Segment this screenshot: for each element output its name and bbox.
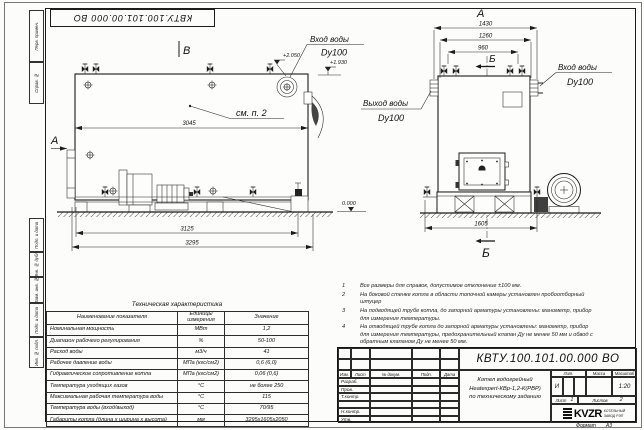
tech-cell: Диапазон рабочего регулирования	[47, 336, 178, 347]
pipe-dn: Dy100	[378, 113, 404, 123]
dim-text: 960	[478, 46, 489, 52]
inlet-flange-right	[530, 80, 543, 96]
tech-cell: Температура уходящих газов	[47, 381, 178, 392]
tech-cell: 1,2	[225, 325, 309, 336]
valve-icon	[207, 64, 213, 74]
tech-cell: Габариты котла (длина х ширина х высота)	[47, 415, 178, 426]
elevation-inlet: +2.050	[274, 53, 301, 76]
tech-cell: Гидравлическое сопротивление котла	[47, 370, 178, 381]
pipe-label: Вход воды	[558, 63, 597, 72]
product-line: Котел водогрейный	[477, 376, 532, 385]
tech-cell: мм	[178, 415, 225, 426]
valve-icon	[93, 64, 99, 74]
kvzr-logo-text: KVZR	[574, 408, 602, 420]
dimension-960: 960	[448, 46, 518, 65]
tech-cell: 41	[225, 347, 309, 358]
note-item: 2 На боковой стенке котла в области топо…	[338, 292, 596, 307]
tech-header-row: Наименование показателя Единицы измерени…	[47, 312, 309, 325]
col-izm: Изм.	[338, 370, 351, 378]
title-block: Изм. Лист № докум. Подп. Дата Разраб. Пр…	[337, 347, 636, 422]
drain-valve-left	[423, 187, 437, 197]
product-line: Heatexpert-КВр-1,2-К(РВР)	[469, 385, 541, 394]
pipe-label: Выход воды	[363, 99, 408, 108]
note-text: На боковой стенке котла в области топочн…	[360, 292, 596, 307]
lit-label: Лит.	[551, 370, 586, 377]
tech-cell: °С	[178, 404, 225, 415]
tech-row: Максимальная рабочая температура воды°С1…	[47, 392, 309, 403]
sig-razrab: Разраб.	[338, 378, 370, 386]
note-item: 4 На отводящей трубе котла до запорной а…	[338, 324, 596, 346]
dim-text: 1430	[479, 22, 493, 28]
ground-line	[420, 213, 601, 218]
tech-row: Габариты котла (длина х ширина х высота)…	[47, 415, 309, 426]
tech-characteristics: Техническая характеристика Наименование …	[46, 301, 308, 427]
tech-cell: МПа (кгс/см2)	[178, 358, 225, 369]
elevation-text: 0.000	[342, 201, 357, 207]
valve-icon	[441, 66, 447, 76]
section-letter: Б	[489, 54, 496, 65]
sheets-label: Листов	[592, 398, 607, 403]
tech-cell: Номинальная мощность	[47, 325, 178, 336]
valve-icon	[453, 66, 459, 76]
valve-icon	[82, 64, 88, 74]
col-dokum: № докум.	[370, 370, 413, 378]
note-item: 1 Все размеры для справок, допустимое от…	[338, 283, 596, 290]
ground-line	[57, 212, 333, 217]
scale-label: Масштаб	[612, 370, 637, 377]
view-label-B: В	[179, 41, 190, 57]
format-value: А3	[606, 423, 612, 429]
view-arrow-A: А	[50, 135, 67, 149]
tech-row: Рабочее давление водыМПа (кгс/см2)0,6 (6…	[47, 358, 309, 369]
sig-nkontr: Н.контр.	[338, 408, 370, 416]
outlet-flange-left	[430, 80, 438, 96]
company-line: ЗАВОД РЭП	[604, 414, 625, 418]
note-text: Все размеры для справок, допустимое откл…	[360, 283, 596, 290]
sheets-value: 2	[620, 397, 623, 403]
pipe-dn: Dy100	[567, 77, 593, 87]
dim-text: 3125	[180, 227, 194, 233]
tech-row: Расход водым3/ч41	[47, 347, 309, 358]
mass-label: Масса	[586, 370, 612, 377]
tech-cell: МПа (кгс/см2)	[178, 370, 225, 381]
tech-cell: Рабочее давление воды	[47, 358, 178, 369]
tech-row: Номинальная мощностьМВт1,2	[47, 325, 309, 336]
format-label: Формат	[576, 423, 596, 429]
boiler-body-side	[75, 74, 308, 200]
sheet-value: 1	[570, 397, 573, 403]
format-note: Формат А3	[576, 423, 612, 429]
burner-motor	[157, 185, 184, 203]
col-podp: Подп.	[412, 370, 440, 378]
pipe-label: Вход воды	[310, 35, 349, 44]
inlet-callout: Вход воды Dy100	[290, 35, 364, 77]
note-number: 1	[338, 283, 360, 290]
tech-cell: МВт	[178, 325, 225, 336]
company-name: КОТЕЛЬНЫЙ ЗАВОД РЭП	[604, 409, 625, 417]
elevation-zero: 0.000	[337, 201, 366, 212]
sig-prov: Пров.	[338, 386, 370, 394]
section-letter: Б	[482, 246, 490, 260]
tech-table: Наименование показателя Единицы измерени…	[46, 311, 309, 427]
tech-cell: 0,6 (6,0)	[225, 358, 309, 369]
valve-icon	[267, 64, 273, 74]
tech-cell: %	[178, 336, 225, 347]
dim-text: 1260	[479, 34, 493, 40]
sheets-cell: Листов 2	[578, 396, 637, 404]
tech-cell: 0,06 (0,6)	[225, 370, 309, 381]
tech-row: Гидравлическое сопротивление котлаМПа (к…	[47, 370, 309, 381]
tech-cell: не более 250	[225, 381, 309, 392]
sig-tkontr: Т.контр.	[338, 393, 370, 401]
sig-blank	[338, 401, 370, 409]
product-line: по техническому заданию	[469, 393, 541, 402]
view-letter: В	[183, 45, 190, 57]
tech-cell: 115	[225, 392, 309, 403]
pipe-dn: Dy100	[321, 48, 347, 58]
product-name: Котел водогрейный Heatexpert-КВр-1,2-К(Р…	[459, 370, 551, 423]
dim-text: 3295	[185, 241, 199, 247]
outlet-callout: Выход воды Dy100	[361, 91, 431, 123]
note-text: На подводящей трубе котла, до запорной а…	[360, 308, 596, 323]
note-number: 3	[338, 308, 360, 323]
dim-text: 1605	[474, 222, 488, 228]
inlet-flange	[277, 77, 297, 97]
company-line: КОТЕЛЬНЫЙ	[604, 409, 625, 413]
side-view: 3045 3125 3295 +2.050	[50, 35, 366, 251]
tech-header-cell: Значение	[225, 312, 309, 325]
dim-text: 3045	[182, 121, 196, 127]
valve-icon	[507, 66, 513, 76]
notes-block: 1 Все размеры для справок, допустимое от…	[338, 283, 596, 348]
tech-cell: 50-100	[225, 336, 309, 347]
col-list: Лист	[351, 370, 370, 378]
valve-icon	[519, 66, 525, 76]
inlet-callout: Вход воды Dy100	[540, 63, 612, 87]
tech-cell: Расход воды	[47, 347, 178, 358]
elevation-text: +1.930	[330, 60, 348, 66]
callout-text: см. п. 2	[236, 108, 267, 118]
furnace-door	[456, 153, 509, 190]
scale-value: 1:20	[612, 377, 637, 396]
tech-row: Температура уходящих газов°Сне более 250	[47, 381, 309, 392]
kvzr-logo-icon	[563, 408, 572, 419]
elevation-text: +2.050	[283, 53, 301, 59]
view-title: А	[476, 8, 484, 20]
note-item: 3 На подводящей трубе котла, до запорной…	[338, 308, 596, 323]
tech-header-cell: Наименование показателя	[47, 312, 178, 325]
tech-cell: °С	[178, 392, 225, 403]
tech-cell: м3/ч	[178, 347, 225, 358]
company-cell: KVZR КОТЕЛЬНЫЙ ЗАВОД РЭП	[551, 404, 637, 423]
col-data: Дата	[440, 370, 459, 378]
tech-table-title: Техническая характеристика	[46, 301, 308, 311]
sheet-cell: Лист 1	[551, 396, 578, 404]
lit-value: И	[551, 377, 563, 396]
front-view: А	[361, 8, 612, 260]
rear-pipe-stub	[67, 150, 75, 198]
elevation-outlet: +1.930	[318, 60, 348, 75]
tech-row: Температура воды (вход/выход)°С70/95	[47, 404, 309, 415]
doc-number: КВТУ.100.101.00.000 ВО	[459, 348, 637, 370]
note-text: На отводящей трубе котла до запорной арм…	[360, 324, 596, 346]
blower-assembly	[534, 174, 581, 214]
tech-row: Диапазон рабочего регулирования%50-100	[47, 336, 309, 347]
tech-cell: °С	[178, 381, 225, 392]
drawing-sheet: КВТУ.100.101.00.000 ВО Перв. примен. Спр…	[0, 0, 644, 430]
section-mark-top: Б	[476, 54, 497, 69]
sheet-label: Лист	[556, 398, 567, 403]
sig-utv: Утв.	[338, 416, 370, 424]
skid-base	[437, 192, 531, 213]
tech-cell: Максимальная рабочая температура воды	[47, 392, 178, 403]
tech-header-cell: Единицы измерения	[178, 312, 225, 325]
tech-cell: 70/95	[225, 404, 309, 415]
note-number: 2	[338, 292, 360, 307]
section-mark-bottom: Б	[476, 239, 496, 260]
tech-cell: 3295х1605х2050	[225, 415, 309, 426]
note-number: 4	[338, 324, 360, 346]
sight-glass	[503, 92, 522, 107]
mass-value	[586, 377, 612, 396]
view-letter: А	[50, 135, 58, 147]
tech-cell: Температура воды (вход/выход)	[47, 404, 178, 415]
